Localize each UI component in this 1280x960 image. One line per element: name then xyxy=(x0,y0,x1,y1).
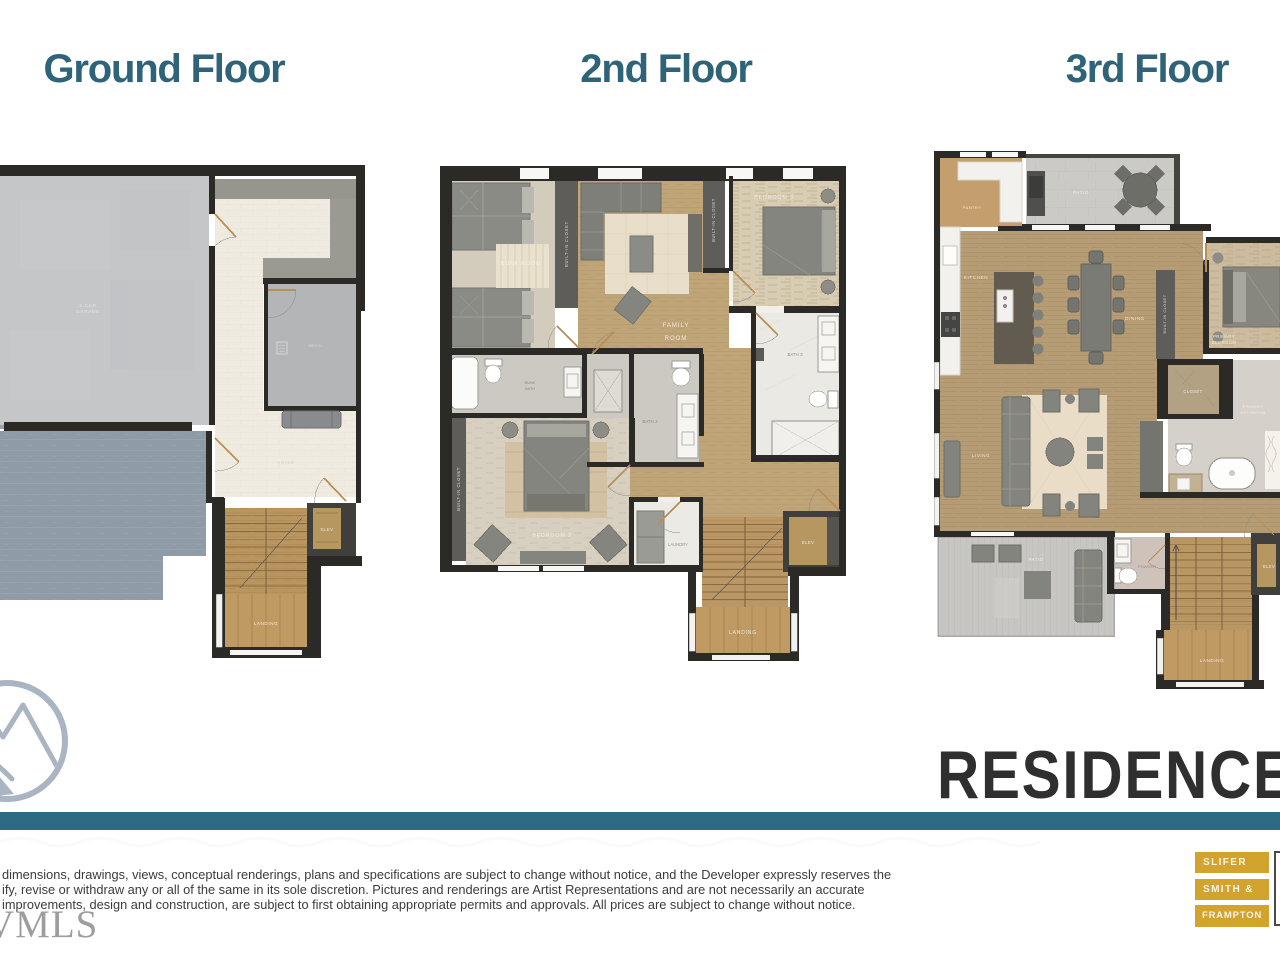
svg-text:BUNK ROOM: BUNK ROOM xyxy=(501,261,541,267)
svg-text:BATH 3: BATH 3 xyxy=(787,352,803,357)
svg-text:PRIMARY: PRIMARY xyxy=(1243,404,1263,409)
svg-text:LAUNDRY: LAUNDRY xyxy=(668,542,688,547)
svg-text:CLOSET: CLOSET xyxy=(1183,389,1202,394)
svg-text:MECH.: MECH. xyxy=(309,343,324,348)
svg-text:BUILT-IN CLOSET: BUILT-IN CLOSET xyxy=(456,467,461,511)
svg-text:BUILT-IN CLOSET: BUILT-IN CLOSET xyxy=(711,198,716,242)
svg-text:BUNK: BUNK xyxy=(524,380,535,385)
svg-text:2 CAR: 2 CAR xyxy=(79,303,96,309)
svg-text:FOYER: FOYER xyxy=(278,460,294,465)
svg-text:FAMILY: FAMILY xyxy=(663,323,690,329)
svg-text:BEDROOM: BEDROOM xyxy=(1212,340,1237,345)
svg-text:BATH: BATH xyxy=(525,386,535,391)
svg-text:PATIO: PATIO xyxy=(1028,557,1043,562)
svg-text:ELEV: ELEV xyxy=(802,540,815,545)
svg-text:BUILT-IN CLOSET: BUILT-IN CLOSET xyxy=(1163,294,1167,333)
svg-text:PANTRY: PANTRY xyxy=(963,205,981,210)
svg-text:BATHROOM: BATHROOM xyxy=(1240,410,1265,415)
svg-text:LIVING: LIVING xyxy=(972,453,990,458)
svg-text:BEDROOM 3: BEDROOM 3 xyxy=(754,195,794,201)
svg-text:PATIO: PATIO xyxy=(1073,190,1089,195)
svg-text:POWDER: POWDER xyxy=(1138,564,1156,569)
svg-text:ELEV: ELEV xyxy=(321,527,334,532)
svg-text:BUILT-IN CLOSET: BUILT-IN CLOSET xyxy=(564,221,569,267)
svg-text:KITCHEN: KITCHEN xyxy=(964,275,988,280)
svg-text:BATH 2: BATH 2 xyxy=(642,419,658,424)
svg-text:LANDING: LANDING xyxy=(254,621,279,626)
svg-text:BEDROOM 2: BEDROOM 2 xyxy=(532,533,572,539)
svg-text:GARAGE: GARAGE xyxy=(76,309,100,315)
svg-text:LANDING: LANDING xyxy=(729,630,757,636)
svg-text:ELEV: ELEV xyxy=(1263,564,1275,569)
svg-text:PRIMARY: PRIMARY xyxy=(1213,334,1235,339)
svg-text:LANDING: LANDING xyxy=(1200,658,1225,663)
svg-text:ROOM: ROOM xyxy=(665,336,688,342)
svg-text:DINING: DINING xyxy=(1125,316,1145,321)
